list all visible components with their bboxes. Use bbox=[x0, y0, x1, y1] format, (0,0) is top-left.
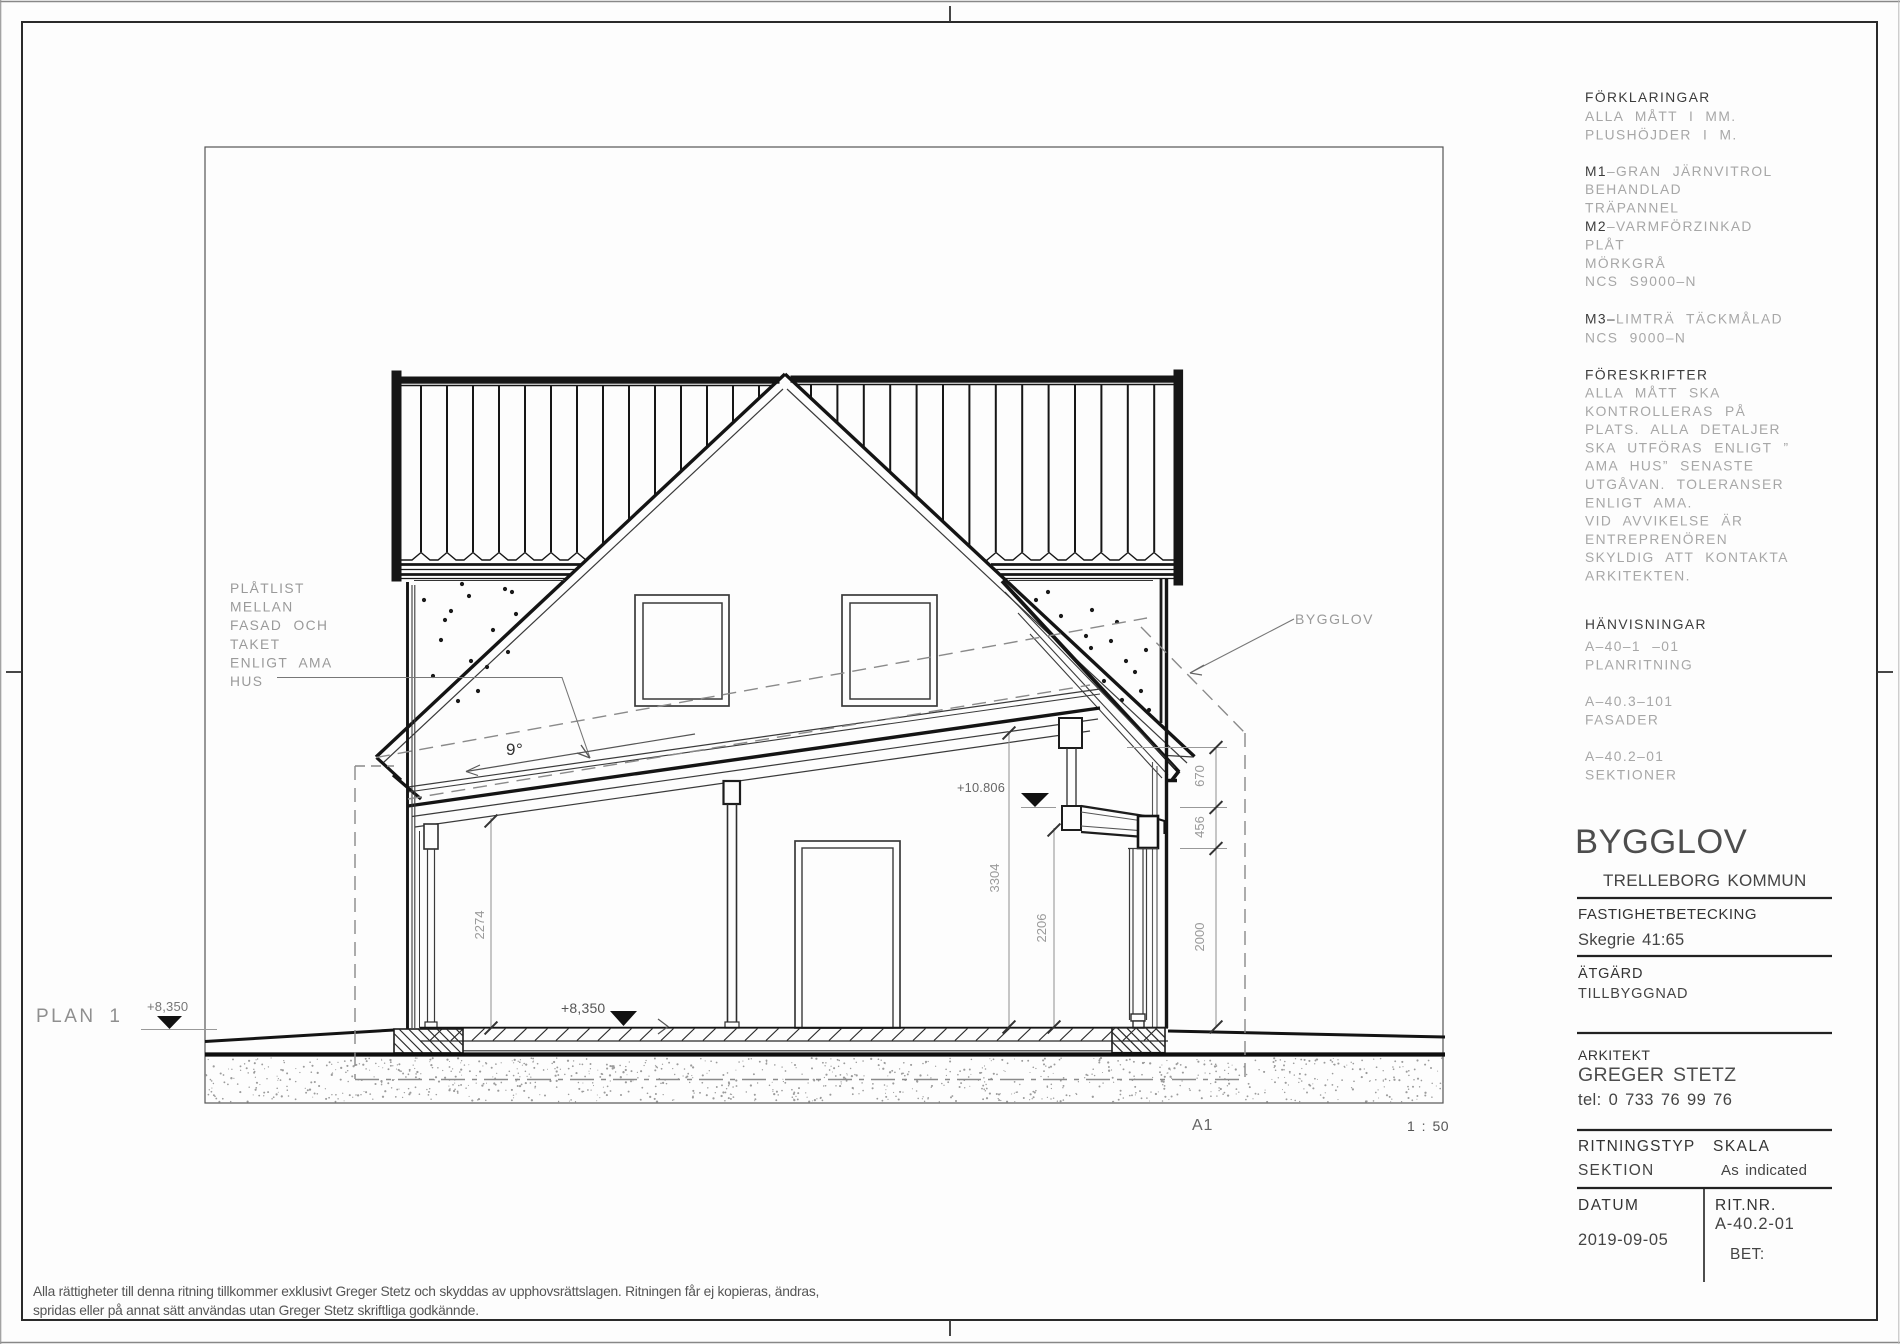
svg-text:HÄNVISNINGAR: HÄNVISNINGAR bbox=[1585, 616, 1707, 632]
svg-text:3304: 3304 bbox=[987, 864, 1002, 893]
svg-text:Alla rättigheter till denna ri: Alla rättigheter till denna ritning till… bbox=[33, 1284, 819, 1299]
svg-text:MELLAN: MELLAN bbox=[230, 600, 294, 615]
svg-text:PLAN 1: PLAN 1 bbox=[36, 1006, 122, 1027]
svg-text:456: 456 bbox=[1192, 816, 1207, 838]
svg-text:PLÅTLIST: PLÅTLIST bbox=[230, 580, 305, 596]
svg-text:ENLIGT AMA.: ENLIGT AMA. bbox=[1585, 495, 1693, 510]
svg-text:FASTIGHETBETECKING: FASTIGHETBETECKING bbox=[1578, 906, 1757, 923]
svg-text:TILLBYGGNAD: TILLBYGGNAD bbox=[1578, 986, 1688, 1002]
svg-text:SKALA: SKALA bbox=[1713, 1138, 1770, 1155]
svg-text:NCS 9000–N: NCS 9000–N bbox=[1585, 331, 1686, 346]
svg-text:PLUSHÖJDER I M.: PLUSHÖJDER I M. bbox=[1585, 126, 1738, 143]
svg-text:BYGGLOV: BYGGLOV bbox=[1295, 611, 1374, 627]
svg-text:+8,350: +8,350 bbox=[147, 999, 188, 1014]
svg-text:2206: 2206 bbox=[1034, 914, 1049, 943]
svg-text:A–40.2–01: A–40.2–01 bbox=[1585, 749, 1664, 764]
svg-text:FASADER: FASADER bbox=[1585, 713, 1659, 728]
svg-text:FASAD OCH: FASAD OCH bbox=[230, 618, 328, 633]
svg-text:VID AVVIKELSE ÄR: VID AVVIKELSE ÄR bbox=[1585, 513, 1743, 529]
svg-text:+10.806: +10.806 bbox=[957, 780, 1005, 795]
svg-text:M1–GRAN JÄRNVITROL: M1–GRAN JÄRNVITROL bbox=[1585, 163, 1773, 179]
svg-text:GREGER STETZ: GREGER STETZ bbox=[1578, 1064, 1736, 1086]
svg-text:M2–VARMFÖRZINKAD: M2–VARMFÖRZINKAD bbox=[1585, 217, 1753, 234]
svg-text:FÖRKLARINGAR: FÖRKLARINGAR bbox=[1585, 88, 1711, 105]
svg-text:BEHANDLAD: BEHANDLAD bbox=[1585, 182, 1682, 197]
svg-text:M3–LIMTRÄ TÄCKMÅLAD: M3–LIMTRÄ TÄCKMÅLAD bbox=[1585, 311, 1783, 327]
svg-text:PLANRITNING: PLANRITNING bbox=[1585, 658, 1693, 673]
svg-text:UTGÅVAN. TOLERANSER: UTGÅVAN. TOLERANSER bbox=[1585, 476, 1784, 492]
svg-text:A–40.3–101: A–40.3–101 bbox=[1585, 694, 1673, 709]
svg-text:TRÄPANNEL: TRÄPANNEL bbox=[1585, 200, 1679, 216]
svg-text:ALLA MÅTT I MM.: ALLA MÅTT I MM. bbox=[1585, 108, 1736, 124]
svg-text:A1: A1 bbox=[1192, 1117, 1213, 1134]
svg-text:ENTREPRENÖREN: ENTREPRENÖREN bbox=[1585, 530, 1728, 547]
svg-text:As indicated: As indicated bbox=[1721, 1162, 1807, 1179]
svg-text:SKA UTFÖRAS ENLIGT ”: SKA UTFÖRAS ENLIGT ” bbox=[1585, 438, 1789, 455]
svg-text:FÖRESKRIFTER: FÖRESKRIFTER bbox=[1585, 366, 1708, 383]
svg-text:ENLIGT AMA: ENLIGT AMA bbox=[230, 655, 333, 670]
svg-text:TAKET: TAKET bbox=[230, 637, 280, 652]
svg-text:2274: 2274 bbox=[472, 911, 487, 940]
svg-text:9°: 9° bbox=[506, 740, 523, 759]
svg-text:tel: 0 733 76 99 76: tel: 0 733 76 99 76 bbox=[1578, 1091, 1732, 1109]
svg-text:A–40–1 –01: A–40–1 –01 bbox=[1585, 639, 1679, 654]
svg-text:BYGGLOV: BYGGLOV bbox=[1575, 823, 1747, 861]
svg-text:ÄTGÄRD: ÄTGÄRD bbox=[1578, 965, 1643, 982]
svg-text:spridas eller på annat sätt an: spridas eller på annat sätt användas uta… bbox=[33, 1303, 479, 1318]
svg-text:DATUM: DATUM bbox=[1578, 1197, 1639, 1214]
svg-text:NCS S9000–N: NCS S9000–N bbox=[1585, 274, 1697, 289]
svg-text:2000: 2000 bbox=[1192, 923, 1207, 952]
svg-text:HUS: HUS bbox=[230, 674, 263, 689]
svg-text:2019-09-05: 2019-09-05 bbox=[1578, 1231, 1668, 1249]
svg-text:+8,350: +8,350 bbox=[561, 1000, 605, 1016]
svg-text:SEKTION: SEKTION bbox=[1578, 1162, 1654, 1179]
svg-text:1 : 50: 1 : 50 bbox=[1407, 1118, 1449, 1134]
svg-text:PLÅT: PLÅT bbox=[1585, 237, 1625, 253]
svg-text:ARKITEKTEN.: ARKITEKTEN. bbox=[1585, 569, 1691, 584]
svg-text:ALLA MÅTT SKA: ALLA MÅTT SKA bbox=[1585, 385, 1721, 401]
svg-text:Skegrie 41:65: Skegrie 41:65 bbox=[1578, 931, 1684, 949]
svg-text:SEKTIONER: SEKTIONER bbox=[1585, 768, 1677, 783]
svg-text:RITNINGSTYP: RITNINGSTYP bbox=[1578, 1138, 1695, 1155]
svg-text:PLATS. ALLA DETALJER: PLATS. ALLA DETALJER bbox=[1585, 422, 1781, 437]
svg-text:TRELLEBORG KOMMUN: TRELLEBORG KOMMUN bbox=[1603, 871, 1807, 890]
svg-text:MÖRKGRÅ: MÖRKGRÅ bbox=[1585, 254, 1666, 271]
svg-text:KONTROLLERAS PÅ: KONTROLLERAS PÅ bbox=[1585, 403, 1746, 419]
svg-text:BET:: BET: bbox=[1730, 1246, 1765, 1263]
svg-text:670: 670 bbox=[1192, 765, 1207, 787]
svg-text:A-40.2-01: A-40.2-01 bbox=[1715, 1215, 1795, 1233]
svg-text:ARKITEKT: ARKITEKT bbox=[1578, 1047, 1650, 1063]
svg-text:RIT.NR.: RIT.NR. bbox=[1715, 1197, 1776, 1214]
svg-text:SKYLDIG ATT KONTAKTA: SKYLDIG ATT KONTAKTA bbox=[1585, 550, 1789, 565]
svg-text:AMA HUS” SENASTE: AMA HUS” SENASTE bbox=[1585, 459, 1754, 474]
